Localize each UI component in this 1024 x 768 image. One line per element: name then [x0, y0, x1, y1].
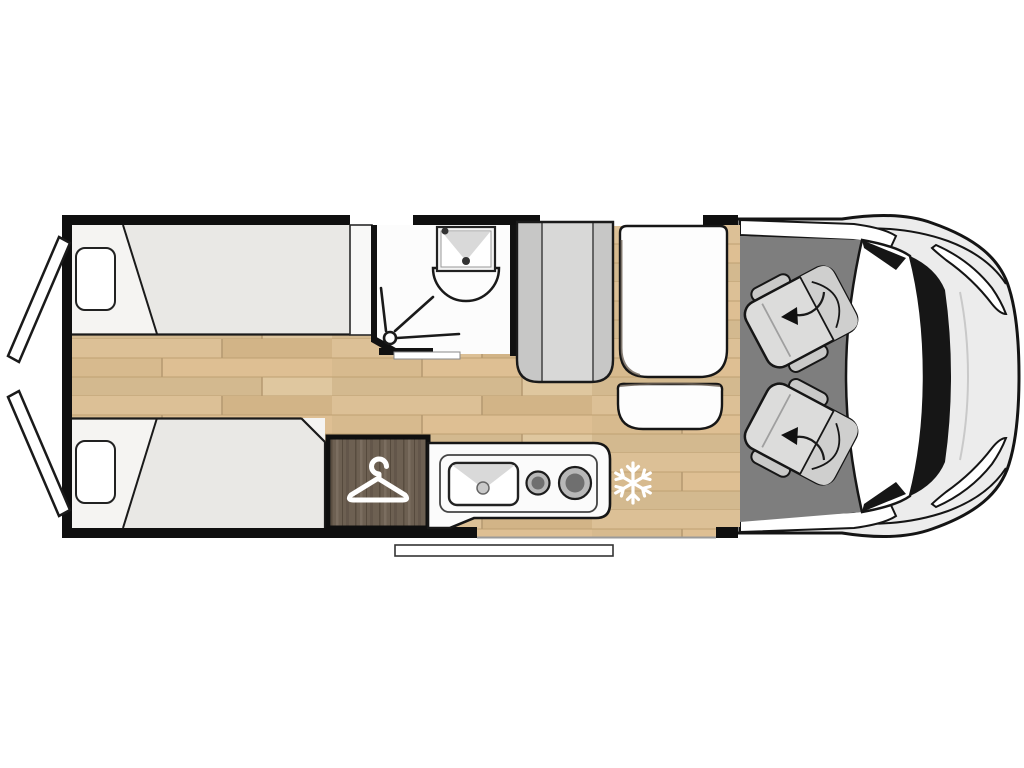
side-bench: [618, 384, 722, 429]
bathroom-wall-left: [371, 225, 377, 342]
wardrobe: [328, 437, 428, 528]
bench-side-right: [593, 222, 613, 382]
rear-door-bottom: [8, 391, 70, 516]
bathroom-sliding-door: [394, 352, 460, 359]
burner-large-core: [566, 474, 585, 493]
pillow-bottom: [76, 441, 115, 503]
pillow-top: [76, 248, 115, 310]
rear-door-top: [8, 237, 70, 362]
bed-top-blanket: [123, 225, 350, 334]
bench-side-left: [517, 222, 542, 382]
bathroom: [371, 225, 517, 359]
entry-floor-strip: [477, 527, 716, 538]
cab-section: [737, 216, 1019, 537]
window-top-1: [350, 213, 413, 226]
bedside-cabinet: [350, 225, 372, 335]
washbasin-tap: [442, 228, 449, 235]
bed-bottom-blanket: [123, 418, 325, 528]
wardrobe-body: [328, 437, 428, 528]
rear-doors: [8, 237, 70, 516]
kitchen-sink-drain: [477, 482, 489, 494]
burner-small-core: [532, 477, 545, 490]
kitchen: [428, 443, 610, 528]
windshield: [846, 240, 924, 512]
dinette-table: [620, 226, 727, 377]
floorplan-page: [0, 0, 1024, 768]
floorplan-canvas: [0, 0, 1024, 768]
washbasin-drain: [462, 257, 470, 265]
entry-step: [395, 545, 613, 556]
